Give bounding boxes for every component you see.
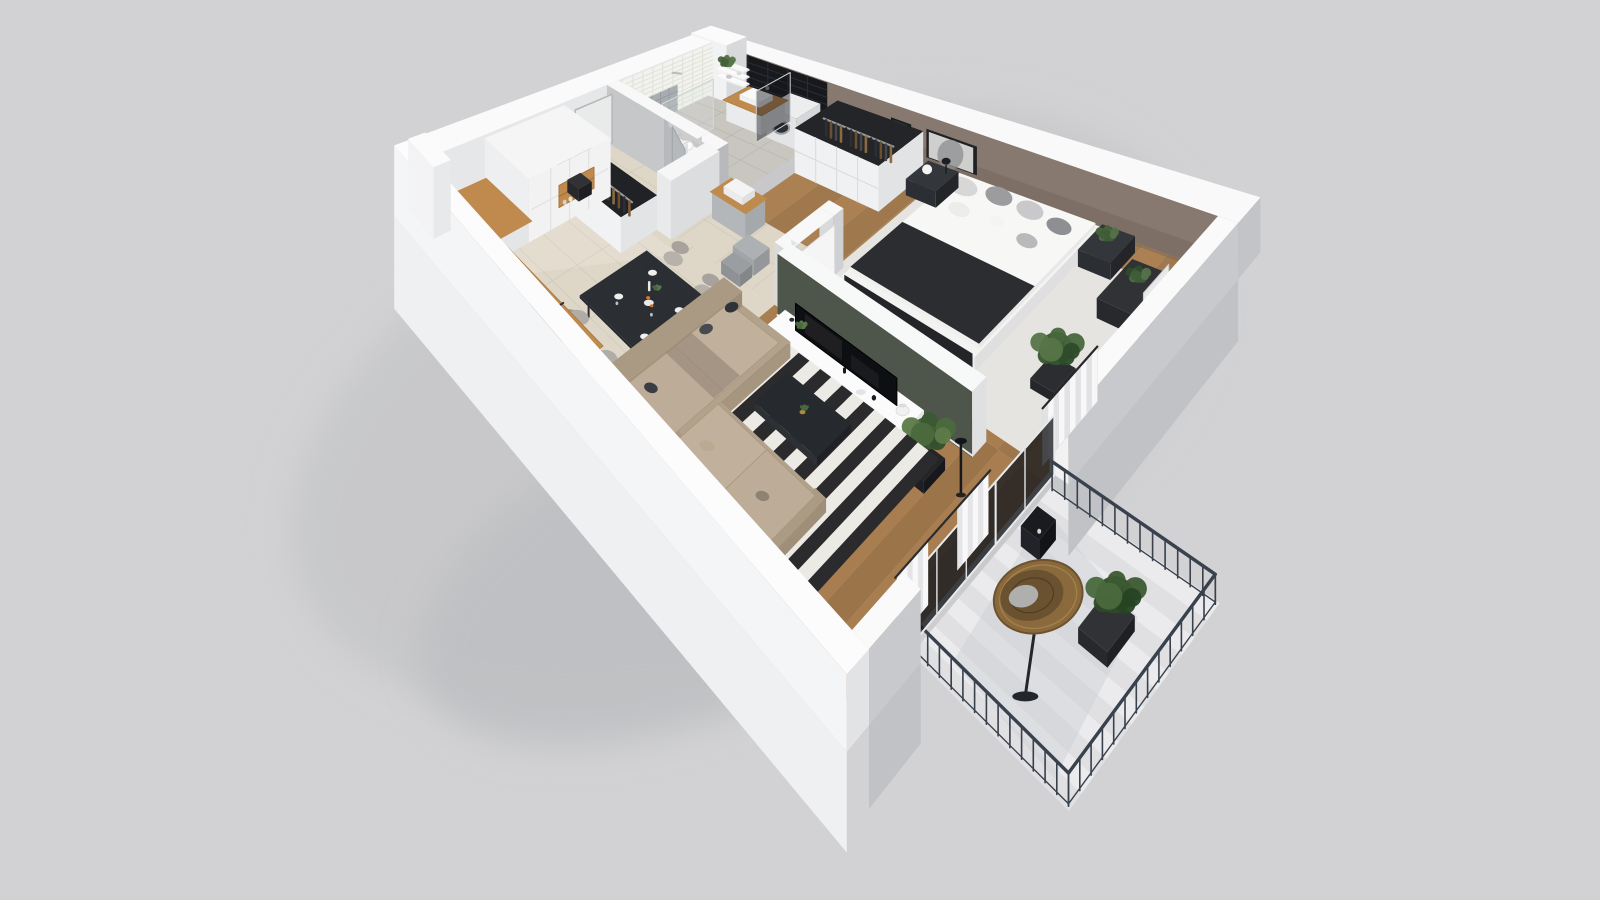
sideboard-deco [789,318,794,322]
floorplan-scene-svg [0,0,1600,900]
picture-art-figure [937,140,963,170]
shelf-jar-2 [726,75,732,79]
lantern-candle [1037,529,1041,534]
plate-2 [614,294,623,300]
sideboard-vase-lamp-top [899,404,907,408]
orange-1 [646,296,650,299]
glass-2 [616,302,619,306]
sideboard-black-vase [872,395,876,401]
sideboard-tray [856,389,866,395]
orange-2 [650,304,654,307]
kitchen-jar-2 [563,200,567,205]
shower-head [673,73,682,74]
floor-lamp-head [955,438,967,444]
floor-lamp-base [956,493,966,498]
nightstand-lamp-sphere [922,164,932,174]
plate-1 [648,270,657,276]
floorplan-3d-render: 3D isometric dollhouse floor plan render… [0,0,1600,900]
shelf-jar-1 [737,71,742,75]
nightstand-lamp-shade [942,158,951,165]
kitchen-jar-1 [569,197,573,202]
glass-1 [650,313,653,317]
